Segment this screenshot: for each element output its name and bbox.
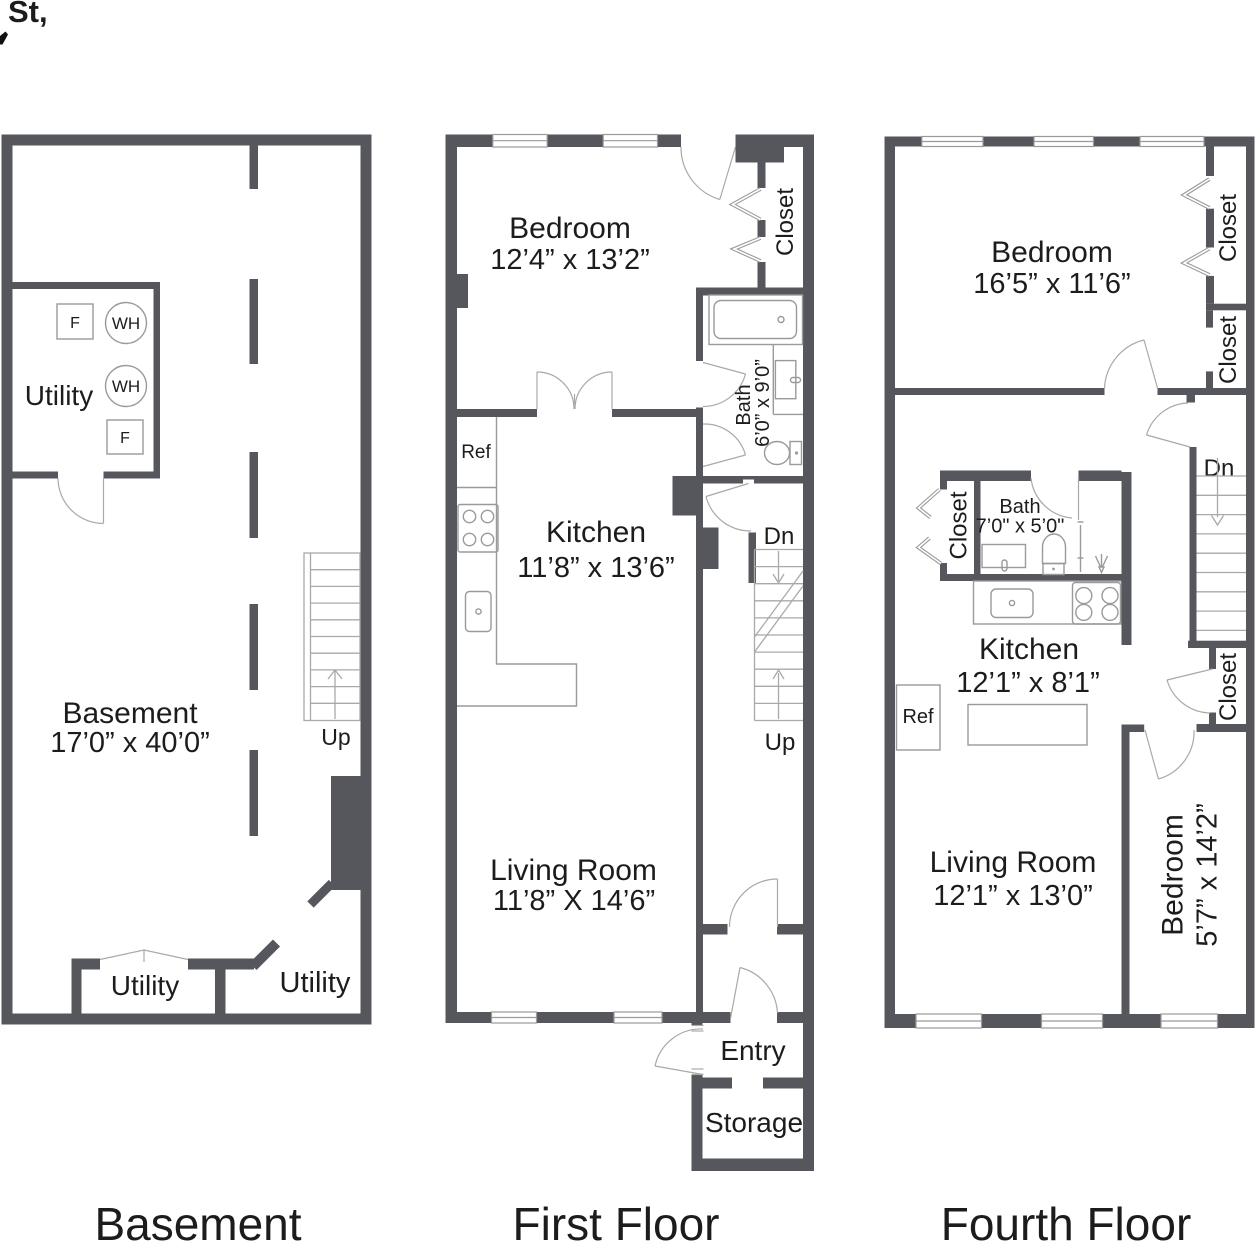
- svg-text:Closet: Closet: [946, 491, 973, 559]
- svg-text:Basement: Basement: [62, 697, 198, 730]
- svg-text:Ref: Ref: [902, 706, 934, 728]
- svg-text:Closet: Closet: [772, 188, 799, 256]
- svg-text:Ref: Ref: [461, 442, 491, 463]
- svg-text:Dn: Dn: [1204, 455, 1235, 482]
- svg-text:12’1” x 13’0”: 12’1” x 13’0”: [933, 880, 1093, 912]
- svg-text:11’8” X 14’6”: 11’8” X 14’6”: [493, 885, 655, 917]
- svg-text:WH: WH: [112, 377, 140, 396]
- svg-text:17’0” x 40’0”: 17’0” x 40’0”: [50, 727, 210, 759]
- svg-text:Closet: Closet: [1215, 653, 1242, 721]
- svg-text:Storage: Storage: [705, 1107, 803, 1138]
- svg-text:First Floor: First Floor: [513, 1198, 720, 1243]
- svg-text:Bedroom: Bedroom: [1157, 814, 1190, 936]
- svg-text:WH: WH: [112, 314, 140, 333]
- svg-text:Basement: Basement: [94, 1198, 301, 1243]
- svg-text:Closet: Closet: [1215, 316, 1242, 384]
- svg-text:Utility: Utility: [25, 380, 93, 411]
- svg-text:Entry: Entry: [720, 1035, 785, 1066]
- svg-text:Up: Up: [321, 724, 350, 750]
- svg-text:St,: St,: [8, 0, 48, 29]
- svg-text:12’1” x 8’1”: 12’1” x 8’1”: [956, 667, 1099, 699]
- svg-text:11’8” x 13’6”: 11’8” x 13’6”: [517, 552, 674, 584]
- svg-text:Bedroom: Bedroom: [509, 212, 631, 245]
- svg-text:5’7” x 14’2”: 5’7” x 14’2”: [1192, 803, 1224, 946]
- svg-text:Kitchen: Kitchen: [546, 516, 646, 549]
- svg-text:16’5” x 11’6”: 16’5” x 11’6”: [973, 268, 1130, 300]
- svg-text:Living Room: Living Room: [930, 846, 1097, 879]
- svg-text:Up: Up: [765, 729, 796, 756]
- svg-text:Living Room: Living Room: [490, 854, 657, 887]
- svg-text:12’4” x 13’2”: 12’4” x 13’2”: [490, 244, 650, 276]
- svg-text:Utility: Utility: [280, 967, 351, 999]
- svg-text:Kitchen: Kitchen: [979, 633, 1079, 666]
- svg-text:F: F: [70, 315, 80, 332]
- svg-text:Dn: Dn: [764, 523, 795, 550]
- svg-text:Utility: Utility: [111, 970, 179, 1001]
- svg-text:Bedroom: Bedroom: [991, 236, 1113, 269]
- svg-text:Closet: Closet: [1215, 194, 1242, 262]
- svg-text:Fourth Floor: Fourth Floor: [941, 1198, 1192, 1243]
- svg-text:6’0” x 9’0”: 6’0” x 9’0”: [752, 359, 774, 447]
- svg-text:F: F: [120, 430, 130, 447]
